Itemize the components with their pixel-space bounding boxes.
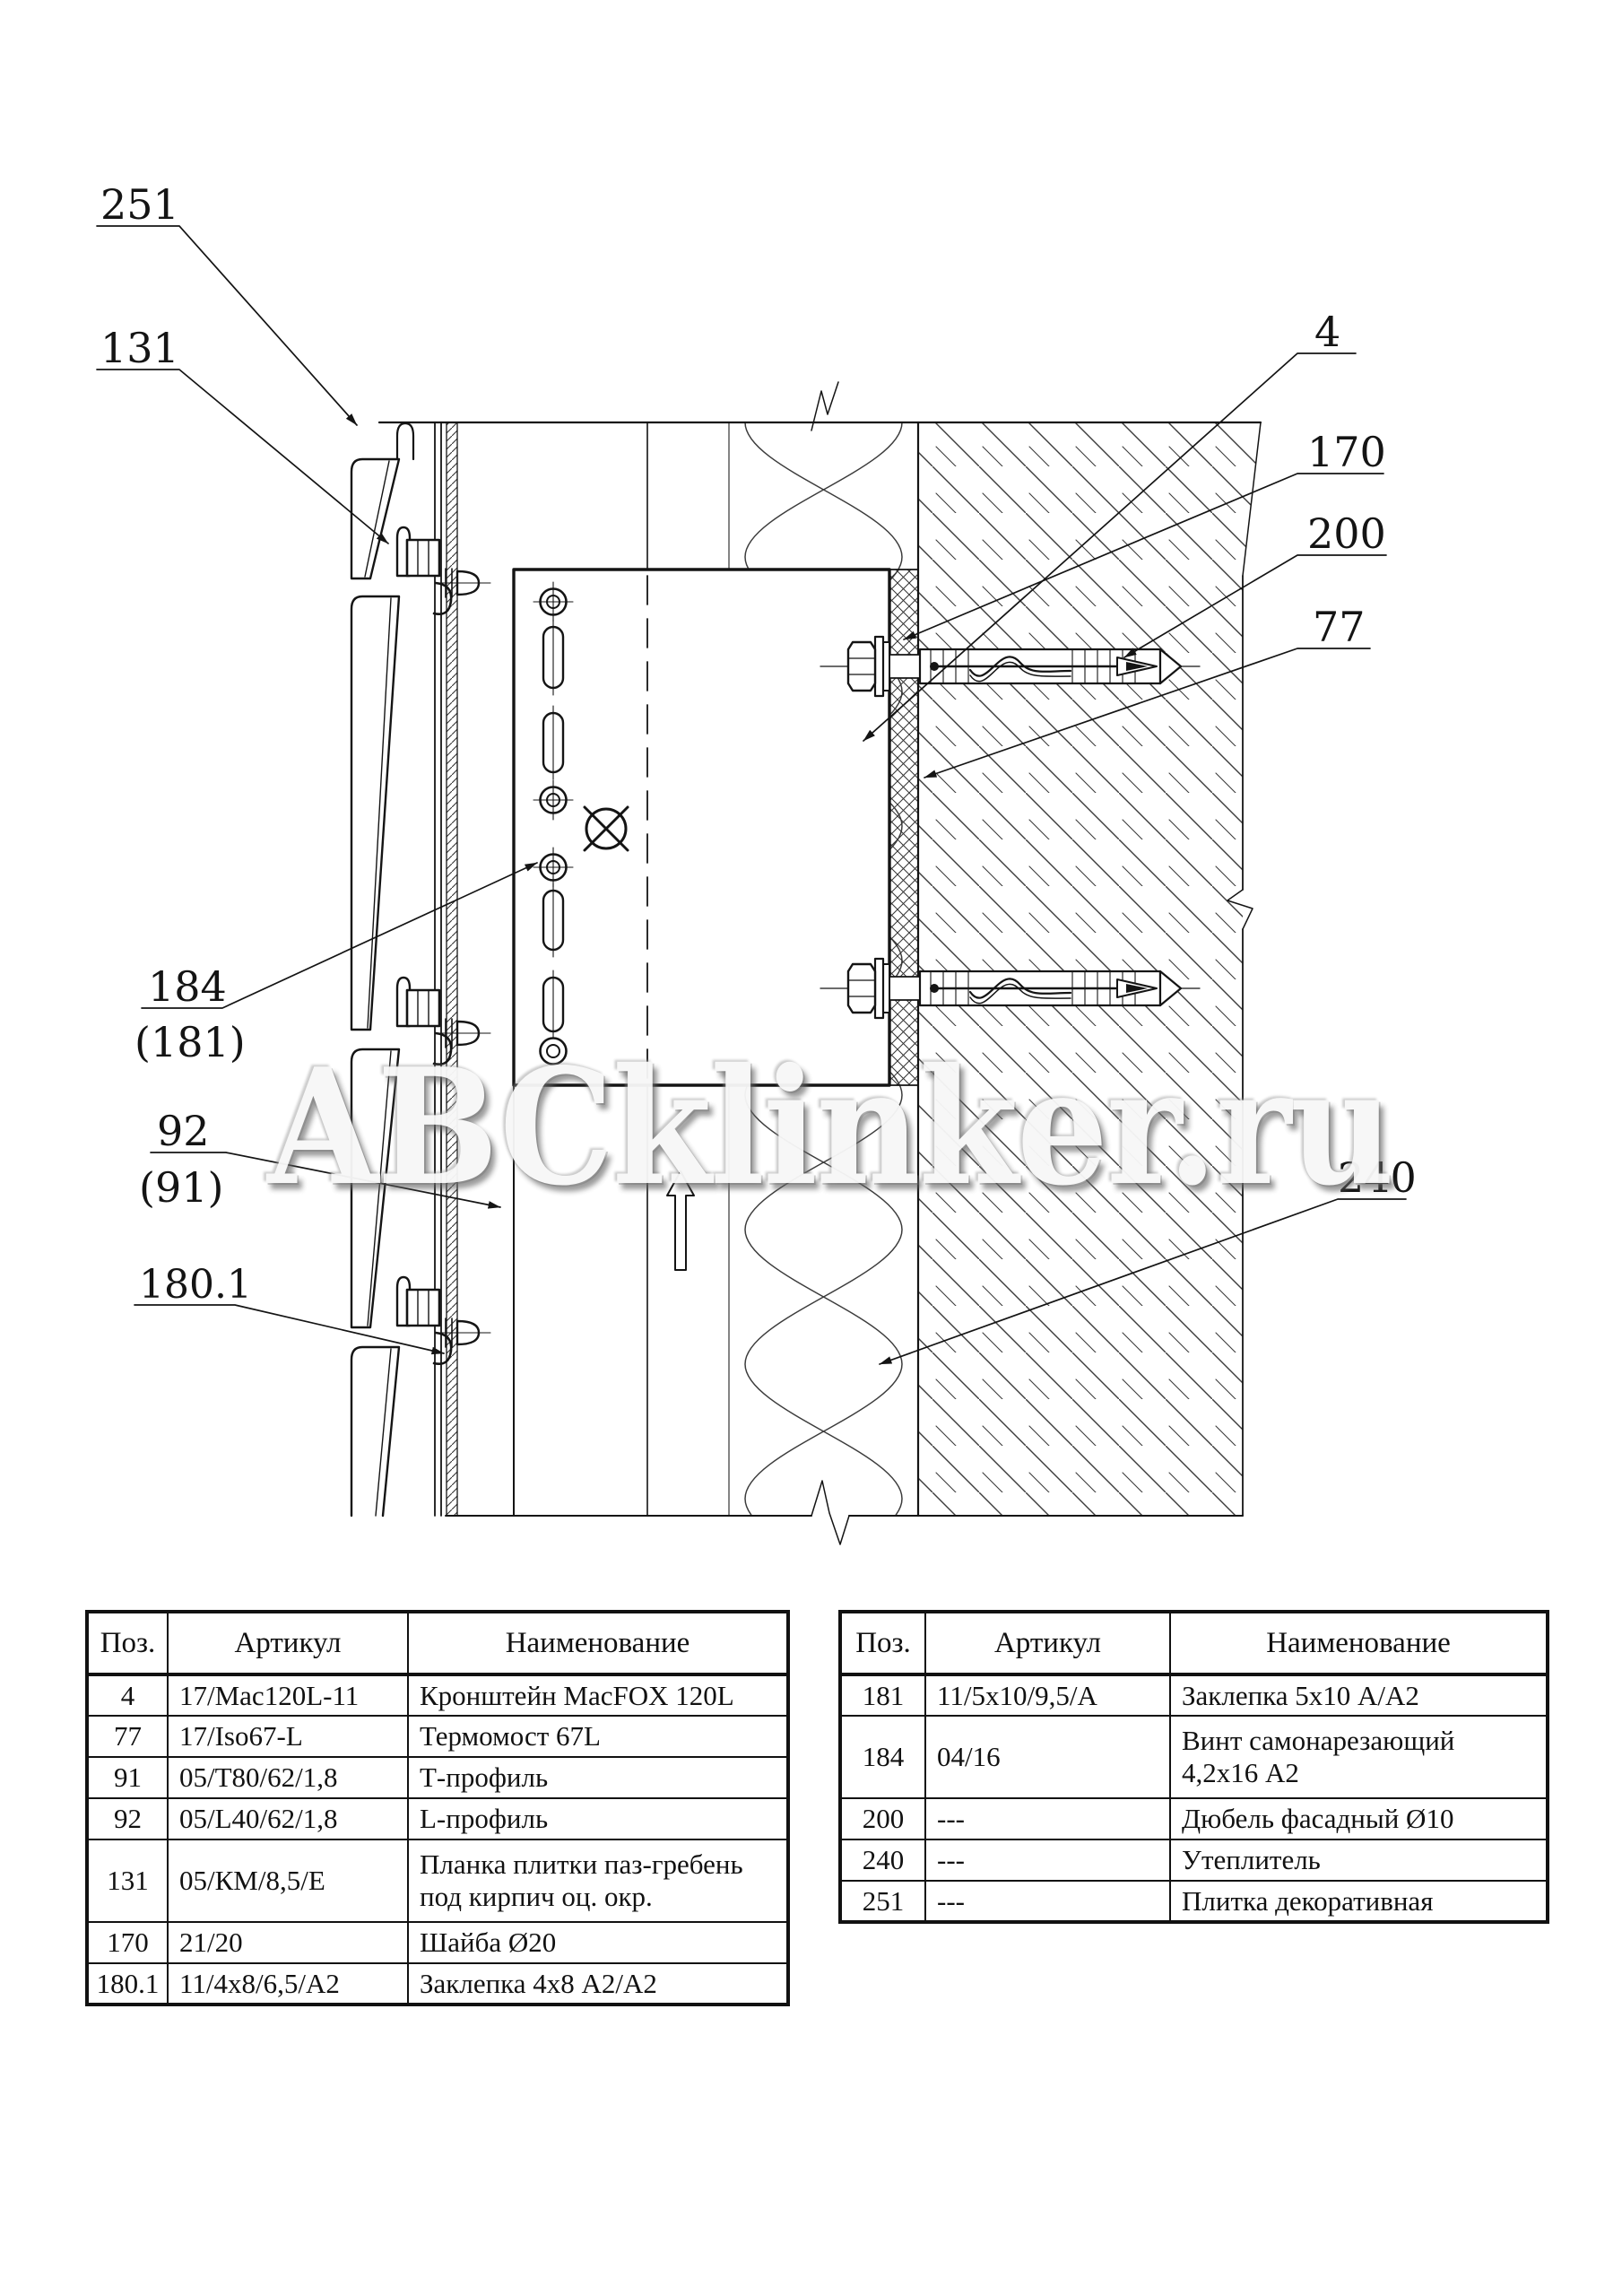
bom-row-180-1: 180.1 11/4х8/6,5/А2 Заклепка 4х8 А2/А2: [87, 1963, 788, 2005]
col-header-name: Наименование: [408, 1612, 788, 1674]
callout-131: 131: [100, 324, 179, 372]
callout-181: (181): [134, 1018, 246, 1066]
bom-row-200: 200 --- Дюбель фасадный Ø10: [840, 1798, 1548, 1839]
cell-name: Винт самонарезающий 4,2х16 А2: [1170, 1716, 1548, 1798]
bom-row-4: 4 17/Mac120L-11 Кронштейн MacFOX 120L: [87, 1674, 788, 1716]
cell-art: 05/КМ/8,5/Е: [168, 1839, 408, 1922]
cell-art: 04/16: [925, 1716, 1170, 1798]
callout-92: 92: [157, 1107, 210, 1155]
cell-pos: 184: [840, 1716, 925, 1798]
cell-pos: 4: [87, 1674, 168, 1716]
bom-row-91: 91 05/Т80/62/1,8 Т-профиль: [87, 1757, 788, 1798]
cell-art: ---: [925, 1881, 1170, 1922]
cell-art: 11/5х10/9,5/А: [925, 1674, 1170, 1716]
cell-art: ---: [925, 1798, 1170, 1839]
decorative-tiles: [351, 423, 413, 1516]
cell-art: 11/4х8/6,5/А2: [168, 1963, 408, 2005]
bom-table-right: Поз. Артикул Наименование 181 11/5х10/9,…: [838, 1610, 1549, 1924]
cell-name: Термомост 67L: [408, 1716, 788, 1757]
cell-name: Кронштейн MacFOX 120L: [408, 1674, 788, 1716]
tile-clips: [397, 527, 490, 1364]
cell-pos: 77: [87, 1716, 168, 1757]
cell-art: 17/Iso67-L: [168, 1716, 408, 1757]
cell-name: L-профиль: [408, 1798, 788, 1839]
bom-row-251: 251 --- Плитка декоративная: [840, 1881, 1548, 1922]
thermal-break-strip: [889, 570, 918, 1085]
cell-art: ---: [925, 1839, 1170, 1881]
bom-left-header-row: Поз. Артикул Наименование: [87, 1612, 788, 1674]
cell-pos: 181: [840, 1674, 925, 1716]
bracket-macfox: [514, 570, 889, 1085]
col-header-art: Артикул: [925, 1612, 1170, 1674]
cell-pos: 131: [87, 1839, 168, 1922]
cell-name: Заклепка 5х10 А/А2: [1170, 1674, 1548, 1716]
cell-art: 05/Т80/62/1,8: [168, 1757, 408, 1798]
callout-91: (91): [139, 1163, 223, 1212]
callout-4: 4: [1314, 308, 1340, 356]
cell-art: 05/L40/62/1,8: [168, 1798, 408, 1839]
bom-row-131: 131 05/КМ/8,5/Е Планка плитки паз-гребен…: [87, 1839, 788, 1922]
bom-row-181: 181 11/5х10/9,5/А Заклепка 5х10 А/А2: [840, 1674, 1548, 1716]
callout-200: 200: [1307, 509, 1386, 558]
col-header-pos: Поз.: [840, 1612, 925, 1674]
cell-art: 17/Mac120L-11: [168, 1674, 408, 1716]
bom-right-header-row: Поз. Артикул Наименование: [840, 1612, 1548, 1674]
callout-180-1: 180.1: [139, 1262, 252, 1308]
cell-name: Планка плитки паз-гребень под кирпич оц.…: [408, 1839, 788, 1922]
cell-name: Шайба Ø20: [408, 1922, 788, 1963]
bom-row-240: 240 --- Утеплитель: [840, 1839, 1548, 1881]
bom-row-184: 184 04/16 Винт самонарезающий 4,2х16 А2: [840, 1716, 1548, 1798]
cell-pos: 91: [87, 1757, 168, 1798]
callout-184: 184: [148, 962, 227, 1011]
cell-pos: 251: [840, 1881, 925, 1922]
leader-131: [97, 370, 388, 544]
cell-pos: 180.1: [87, 1963, 168, 2005]
bom-row-170: 170 21/20 Шайба Ø20: [87, 1922, 788, 1963]
cell-name: Дюбель фасадный Ø10: [1170, 1798, 1548, 1839]
col-header-art: Артикул: [168, 1612, 408, 1674]
cell-name: Заклепка 4х8 А2/А2: [408, 1963, 788, 2005]
col-header-pos: Поз.: [87, 1612, 168, 1674]
wall-layer: [918, 422, 1261, 1516]
bom-table-left: Поз. Артикул Наименование 4 17/Mac120L-1…: [85, 1610, 790, 2006]
callout-77: 77: [1313, 603, 1366, 651]
col-header-name: Наименование: [1170, 1612, 1548, 1674]
technical-drawing-page: 251 131 184 (181) 92 (91) 180.1 4 170 20…: [0, 0, 1622, 2296]
cell-pos: 200: [840, 1798, 925, 1839]
cell-pos: 170: [87, 1922, 168, 1963]
bom-row-92: 92 05/L40/62/1,8 L-профиль: [87, 1798, 788, 1839]
bom-row-77: 77 17/Iso67-L Термомост 67L: [87, 1716, 788, 1757]
callout-170: 170: [1307, 428, 1386, 476]
callout-251: 251: [100, 180, 179, 229]
cell-pos: 92: [87, 1798, 168, 1839]
tile-top-lip: [397, 423, 413, 459]
cell-art: 21/20: [168, 1922, 408, 1963]
watermark: ABCklinker.ru: [267, 1048, 1392, 1207]
cell-pos: 240: [840, 1839, 925, 1881]
cell-name: Т-профиль: [408, 1757, 788, 1798]
cell-name: Утеплитель: [1170, 1839, 1548, 1881]
cell-name: Плитка декоративная: [1170, 1881, 1548, 1922]
